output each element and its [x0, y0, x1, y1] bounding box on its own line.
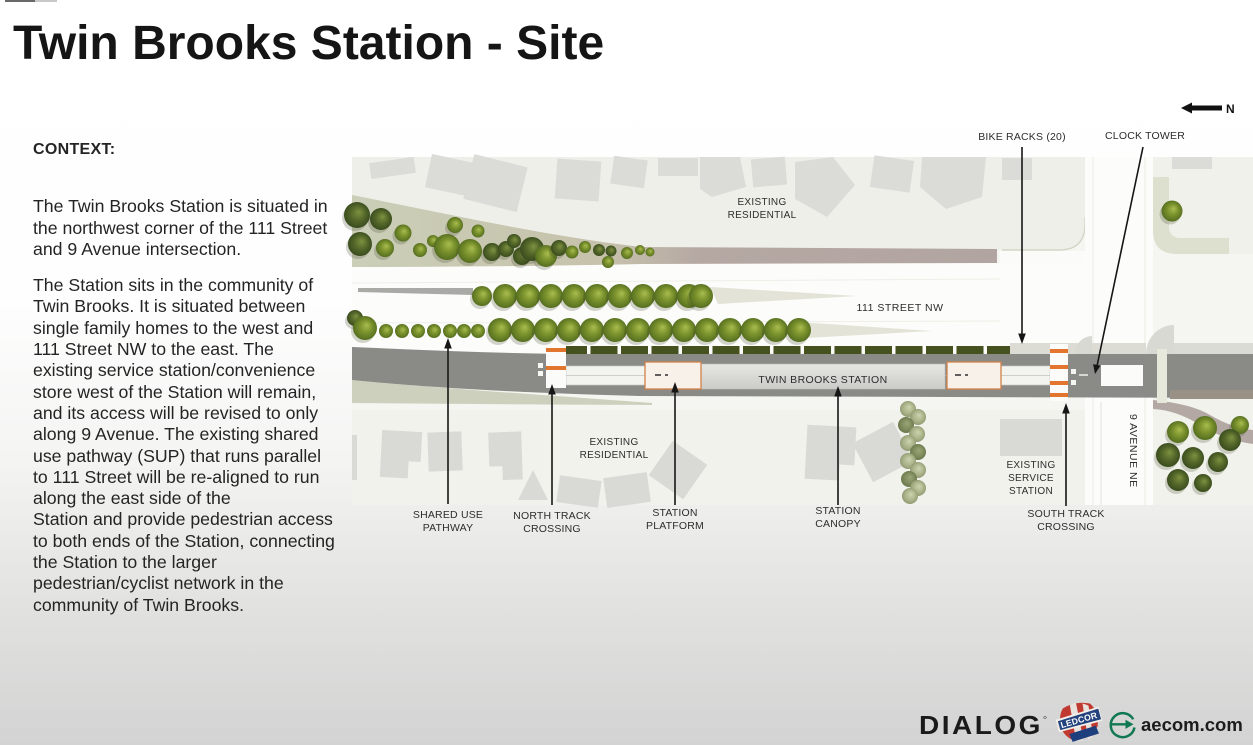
- svg-text:RESIDENTIAL: RESIDENTIAL: [728, 210, 797, 221]
- svg-text:TWIN BROOKS STATION: TWIN BROOKS STATION: [758, 374, 887, 386]
- svg-text:EXISTING: EXISTING: [589, 437, 638, 448]
- svg-text:EXISTING: EXISTING: [1006, 460, 1055, 471]
- svg-text:EXISTING: EXISTING: [737, 197, 786, 208]
- svg-text:SERVICE: SERVICE: [1008, 473, 1054, 484]
- svg-text:N: N: [1226, 102, 1235, 116]
- svg-text:STATION: STATION: [1009, 486, 1053, 497]
- svg-text:9 AVENUE NE: 9 AVENUE NE: [1127, 414, 1139, 488]
- svg-text:111 STREET NW: 111 STREET NW: [856, 302, 943, 314]
- svg-text:RESIDENTIAL: RESIDENTIAL: [580, 450, 649, 461]
